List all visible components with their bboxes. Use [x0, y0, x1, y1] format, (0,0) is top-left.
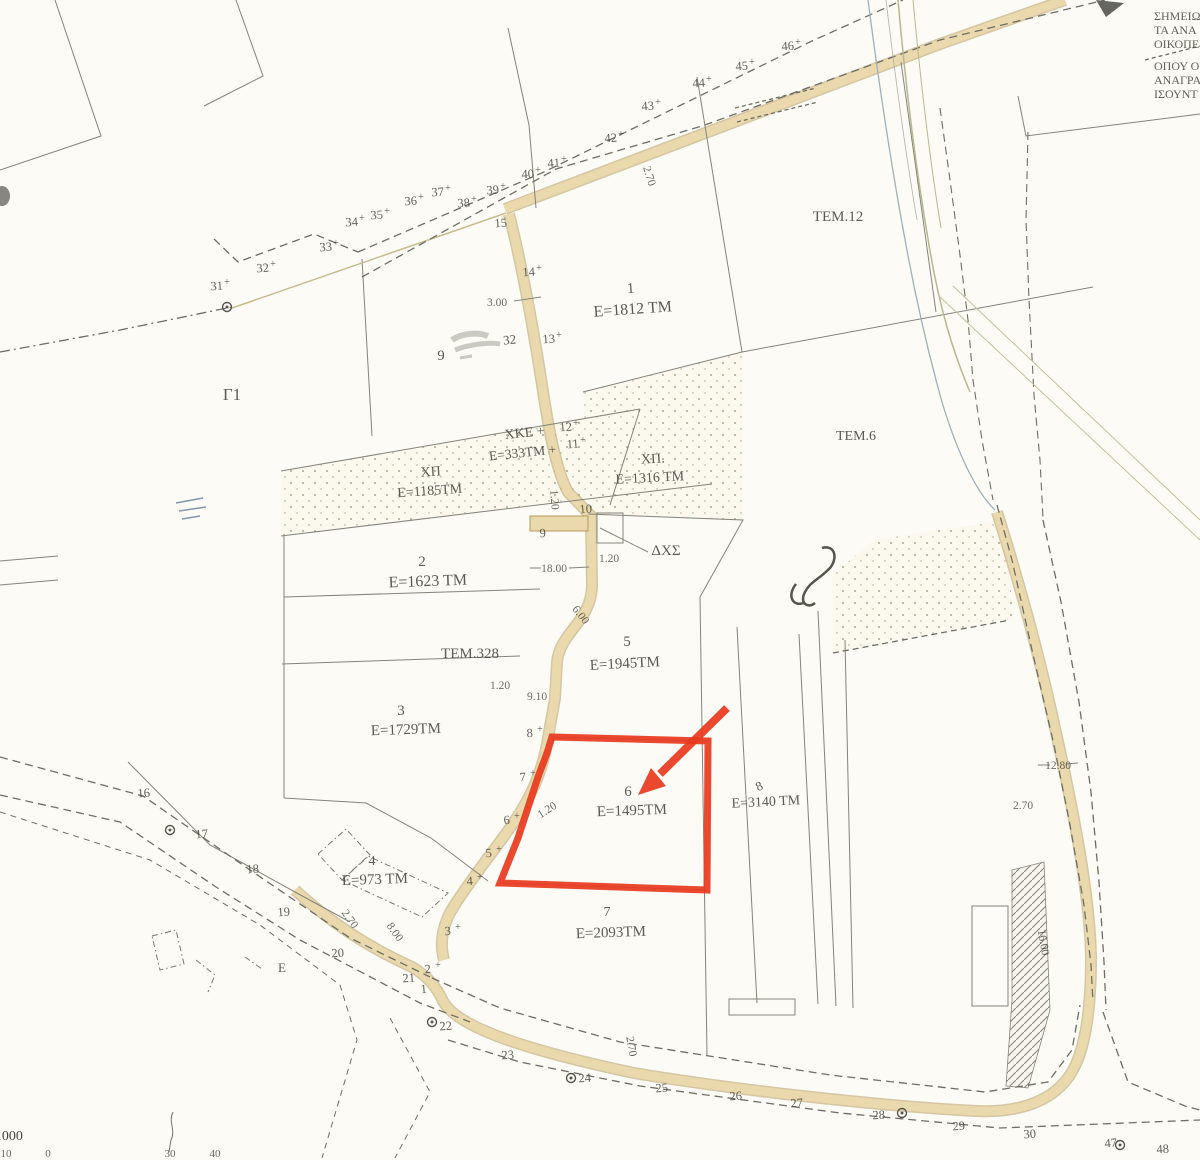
parcel-label: 32: [502, 331, 516, 347]
survey-point-number: 47: [1104, 1136, 1117, 1151]
survey-point-number: 22: [439, 1019, 452, 1034]
dimension-label: 2.70: [1013, 800, 1033, 812]
survey-point-number: 30: [1023, 1127, 1036, 1142]
survey-point-cross: +: [471, 194, 477, 205]
parcel-label: Ε=1623 ΤΜ: [388, 572, 467, 592]
survey-point-cross: +: [530, 768, 536, 779]
survey-point-number: 33: [319, 240, 332, 255]
survey-point-number: 41: [547, 156, 560, 171]
survey-point-cross: +: [445, 183, 451, 194]
cadastral-map-svg: Γ191Ε=1812 ΤΜΤΕΜ.12ΤΕΜ.6ΧΚΕ +Ε=333ΤΜ +ΧΠ…: [0, 0, 1200, 1160]
survey-point-cross: +: [224, 277, 230, 288]
survey-point-cross: +: [655, 97, 661, 108]
survey-point-number: 25: [655, 1081, 668, 1096]
survey-point-cross: +: [359, 213, 365, 224]
survey-point-number: 20: [331, 946, 344, 961]
parcel-label: 2: [418, 554, 426, 570]
survey-point-number: 27: [790, 1096, 803, 1111]
survey-point-cross: +: [384, 206, 390, 217]
survey-point-number: 15: [494, 216, 507, 231]
parcel-label: ΔΧΣ: [651, 543, 680, 559]
survey-point-cross: +: [795, 37, 801, 48]
survey-point-cross: +: [477, 872, 483, 883]
parcel-label: Ε: [278, 960, 286, 975]
survey-point-number: 39: [486, 183, 499, 198]
survey-point-cross: +: [333, 238, 339, 249]
parcel-label: Ε=2093ΤΜ: [576, 924, 647, 942]
parcel-label: Γ1: [223, 385, 241, 404]
survey-point-number: 18: [246, 862, 259, 877]
ruler-number: 30: [165, 1148, 177, 1160]
survey-point-cross: +: [500, 181, 506, 192]
ruler-number: 0: [45, 1148, 51, 1160]
dimension-label: 1.20: [490, 680, 510, 692]
survey-point-number: 17: [195, 827, 208, 842]
survey-point-number: 38: [457, 196, 470, 211]
survey-point-number: 23: [501, 1048, 514, 1063]
survey-point-cross: +: [706, 74, 712, 85]
parcel-label: 6: [624, 784, 632, 800]
survey-point-cross: +: [514, 811, 520, 822]
parcel-label: 4: [369, 854, 376, 869]
survey-point-number: 45: [735, 59, 748, 74]
parcel-label: ΤΕΜ.328: [441, 646, 499, 662]
survey-point-number: 21: [402, 971, 415, 986]
cadastral-map-page: Γ191Ε=1812 ΤΜΤΕΜ.12ΤΕΜ.6ΧΚΕ +Ε=333ΤΜ +ΧΠ…: [0, 0, 1200, 1160]
dimension-label: 1.20: [547, 489, 561, 510]
parcel-label: 1: [626, 281, 635, 297]
survey-point-cross: +: [537, 724, 543, 735]
survey-point-number: 24: [578, 1071, 592, 1086]
survey-point-number: 28: [872, 1108, 885, 1123]
survey-circle-dot: [431, 1021, 434, 1024]
survey-point-number: 11: [566, 437, 579, 452]
dimension-label: 18.00: [541, 563, 567, 575]
ruler-number: 10: [1, 1148, 13, 1160]
survey-point-number: 3: [444, 924, 451, 938]
survey-point-number: 48: [1156, 1142, 1169, 1157]
parcel-label: Ε=973 ΤΜ: [342, 871, 409, 889]
survey-point-cross: +: [580, 435, 586, 446]
survey-point-number: 42: [604, 131, 617, 146]
dimension-label: 9.10: [527, 691, 547, 703]
survey-circle-dot: [570, 1077, 573, 1080]
survey-circle-dot: [169, 829, 172, 832]
survey-point-cross: +: [418, 192, 424, 203]
survey-point-number: 12: [559, 420, 572, 435]
survey-point-number: 26: [729, 1089, 742, 1104]
survey-point-number: 34: [345, 215, 359, 230]
survey-point-number: 43: [641, 99, 654, 114]
survey-point-number: 31: [210, 279, 223, 294]
survey-point-number: 13: [542, 332, 555, 347]
survey-point-number: 9: [539, 526, 546, 540]
survey-point-cross: +: [535, 165, 541, 176]
parcel-label: Ε=1495ΤΜ: [597, 802, 668, 820]
survey-point-number: 46: [781, 39, 794, 54]
parcel-label: ΧΠ: [420, 464, 441, 480]
dimension-label: 3.00: [487, 297, 507, 309]
survey-point-cross: +: [561, 154, 567, 165]
parcel-label: 7: [604, 905, 611, 920]
survey-point-number: 6: [503, 813, 510, 827]
survey-point-number: 14: [522, 265, 536, 280]
dimension-label: 12.80: [1045, 760, 1071, 772]
survey-point-number: 1: [420, 982, 427, 996]
survey-point-cross: +: [270, 259, 276, 270]
parcel-label: 5: [623, 634, 631, 650]
survey-point-number: 32: [256, 261, 269, 276]
survey-point-cross: +: [749, 57, 755, 68]
survey-point-number: 10: [579, 502, 592, 517]
survey-point-number: 2: [424, 962, 431, 976]
parcel-label: ΧΠ.: [641, 451, 665, 467]
survey-point-cross: +: [573, 418, 579, 429]
survey-point-cross: +: [618, 129, 624, 140]
survey-point-number: 5: [485, 846, 492, 860]
survey-point-number: 7: [519, 770, 526, 784]
dimension-label: 1.20: [599, 553, 619, 565]
survey-point-number: 35: [370, 208, 383, 223]
parcel-label: 3: [397, 703, 405, 719]
survey-point-cross: +: [435, 960, 441, 971]
survey-point-cross: +: [455, 922, 461, 933]
parcel-label: ΤΕΜ.12: [813, 209, 863, 225]
survey-point-number: 16: [137, 786, 150, 801]
ruler-number: 40: [210, 1148, 222, 1160]
survey-circle-dot: [1119, 1144, 1122, 1147]
survey-point-cross: +: [556, 330, 562, 341]
survey-point-number: 36: [404, 194, 417, 209]
survey-point-number: 44: [692, 76, 706, 91]
survey-point-cross: +: [496, 844, 502, 855]
parcel-label: 9: [437, 348, 445, 364]
survey-point-number: 37: [431, 185, 444, 200]
survey-point-number: 19: [277, 905, 290, 920]
scale-label: 1:1000: [0, 1129, 23, 1144]
survey-point-number: 40: [521, 167, 534, 182]
survey-point-number: 29: [952, 1119, 965, 1134]
parcel-label: Ε=1729ΤΜ: [371, 721, 442, 739]
survey-circle-dot: [226, 306, 229, 309]
survey-circle-dot: [901, 1112, 904, 1115]
survey-point-number: 8: [526, 726, 533, 740]
survey-point-cross: +: [536, 263, 542, 274]
parcel-label: ΤΕΜ.6: [836, 429, 876, 444]
